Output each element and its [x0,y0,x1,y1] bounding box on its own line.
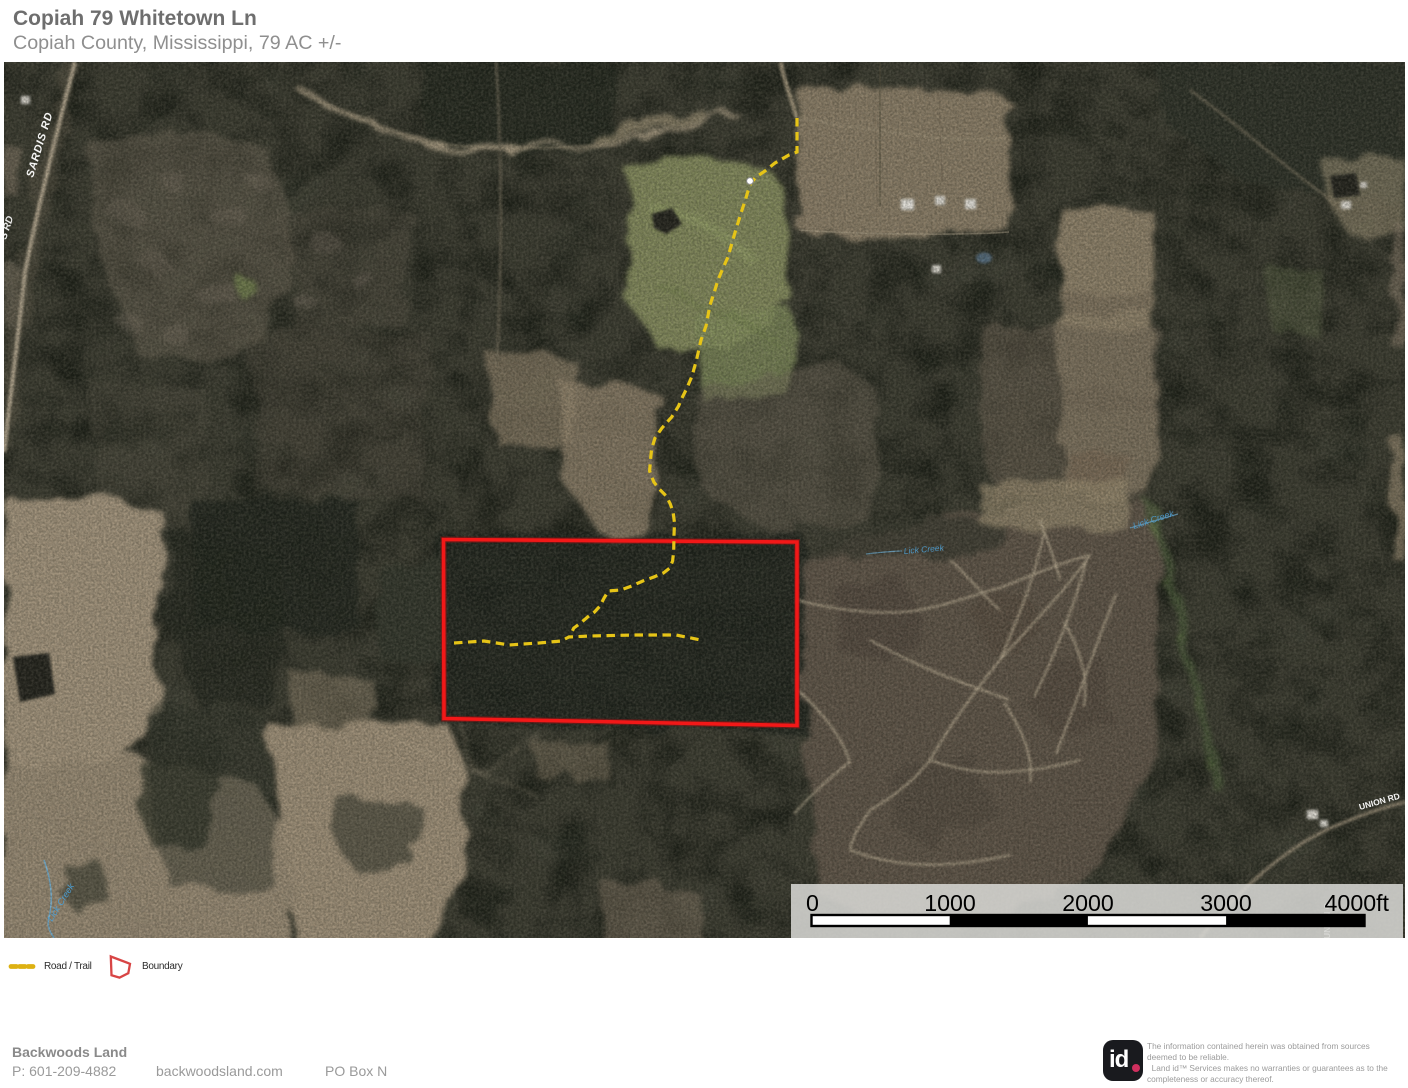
svg-text:2000: 2000 [1062,890,1114,916]
svg-text:4000ft: 4000ft [1325,890,1390,916]
svg-text:3000: 3000 [1200,890,1252,916]
svg-text:1000: 1000 [924,890,976,916]
svg-text:0: 0 [806,890,819,916]
